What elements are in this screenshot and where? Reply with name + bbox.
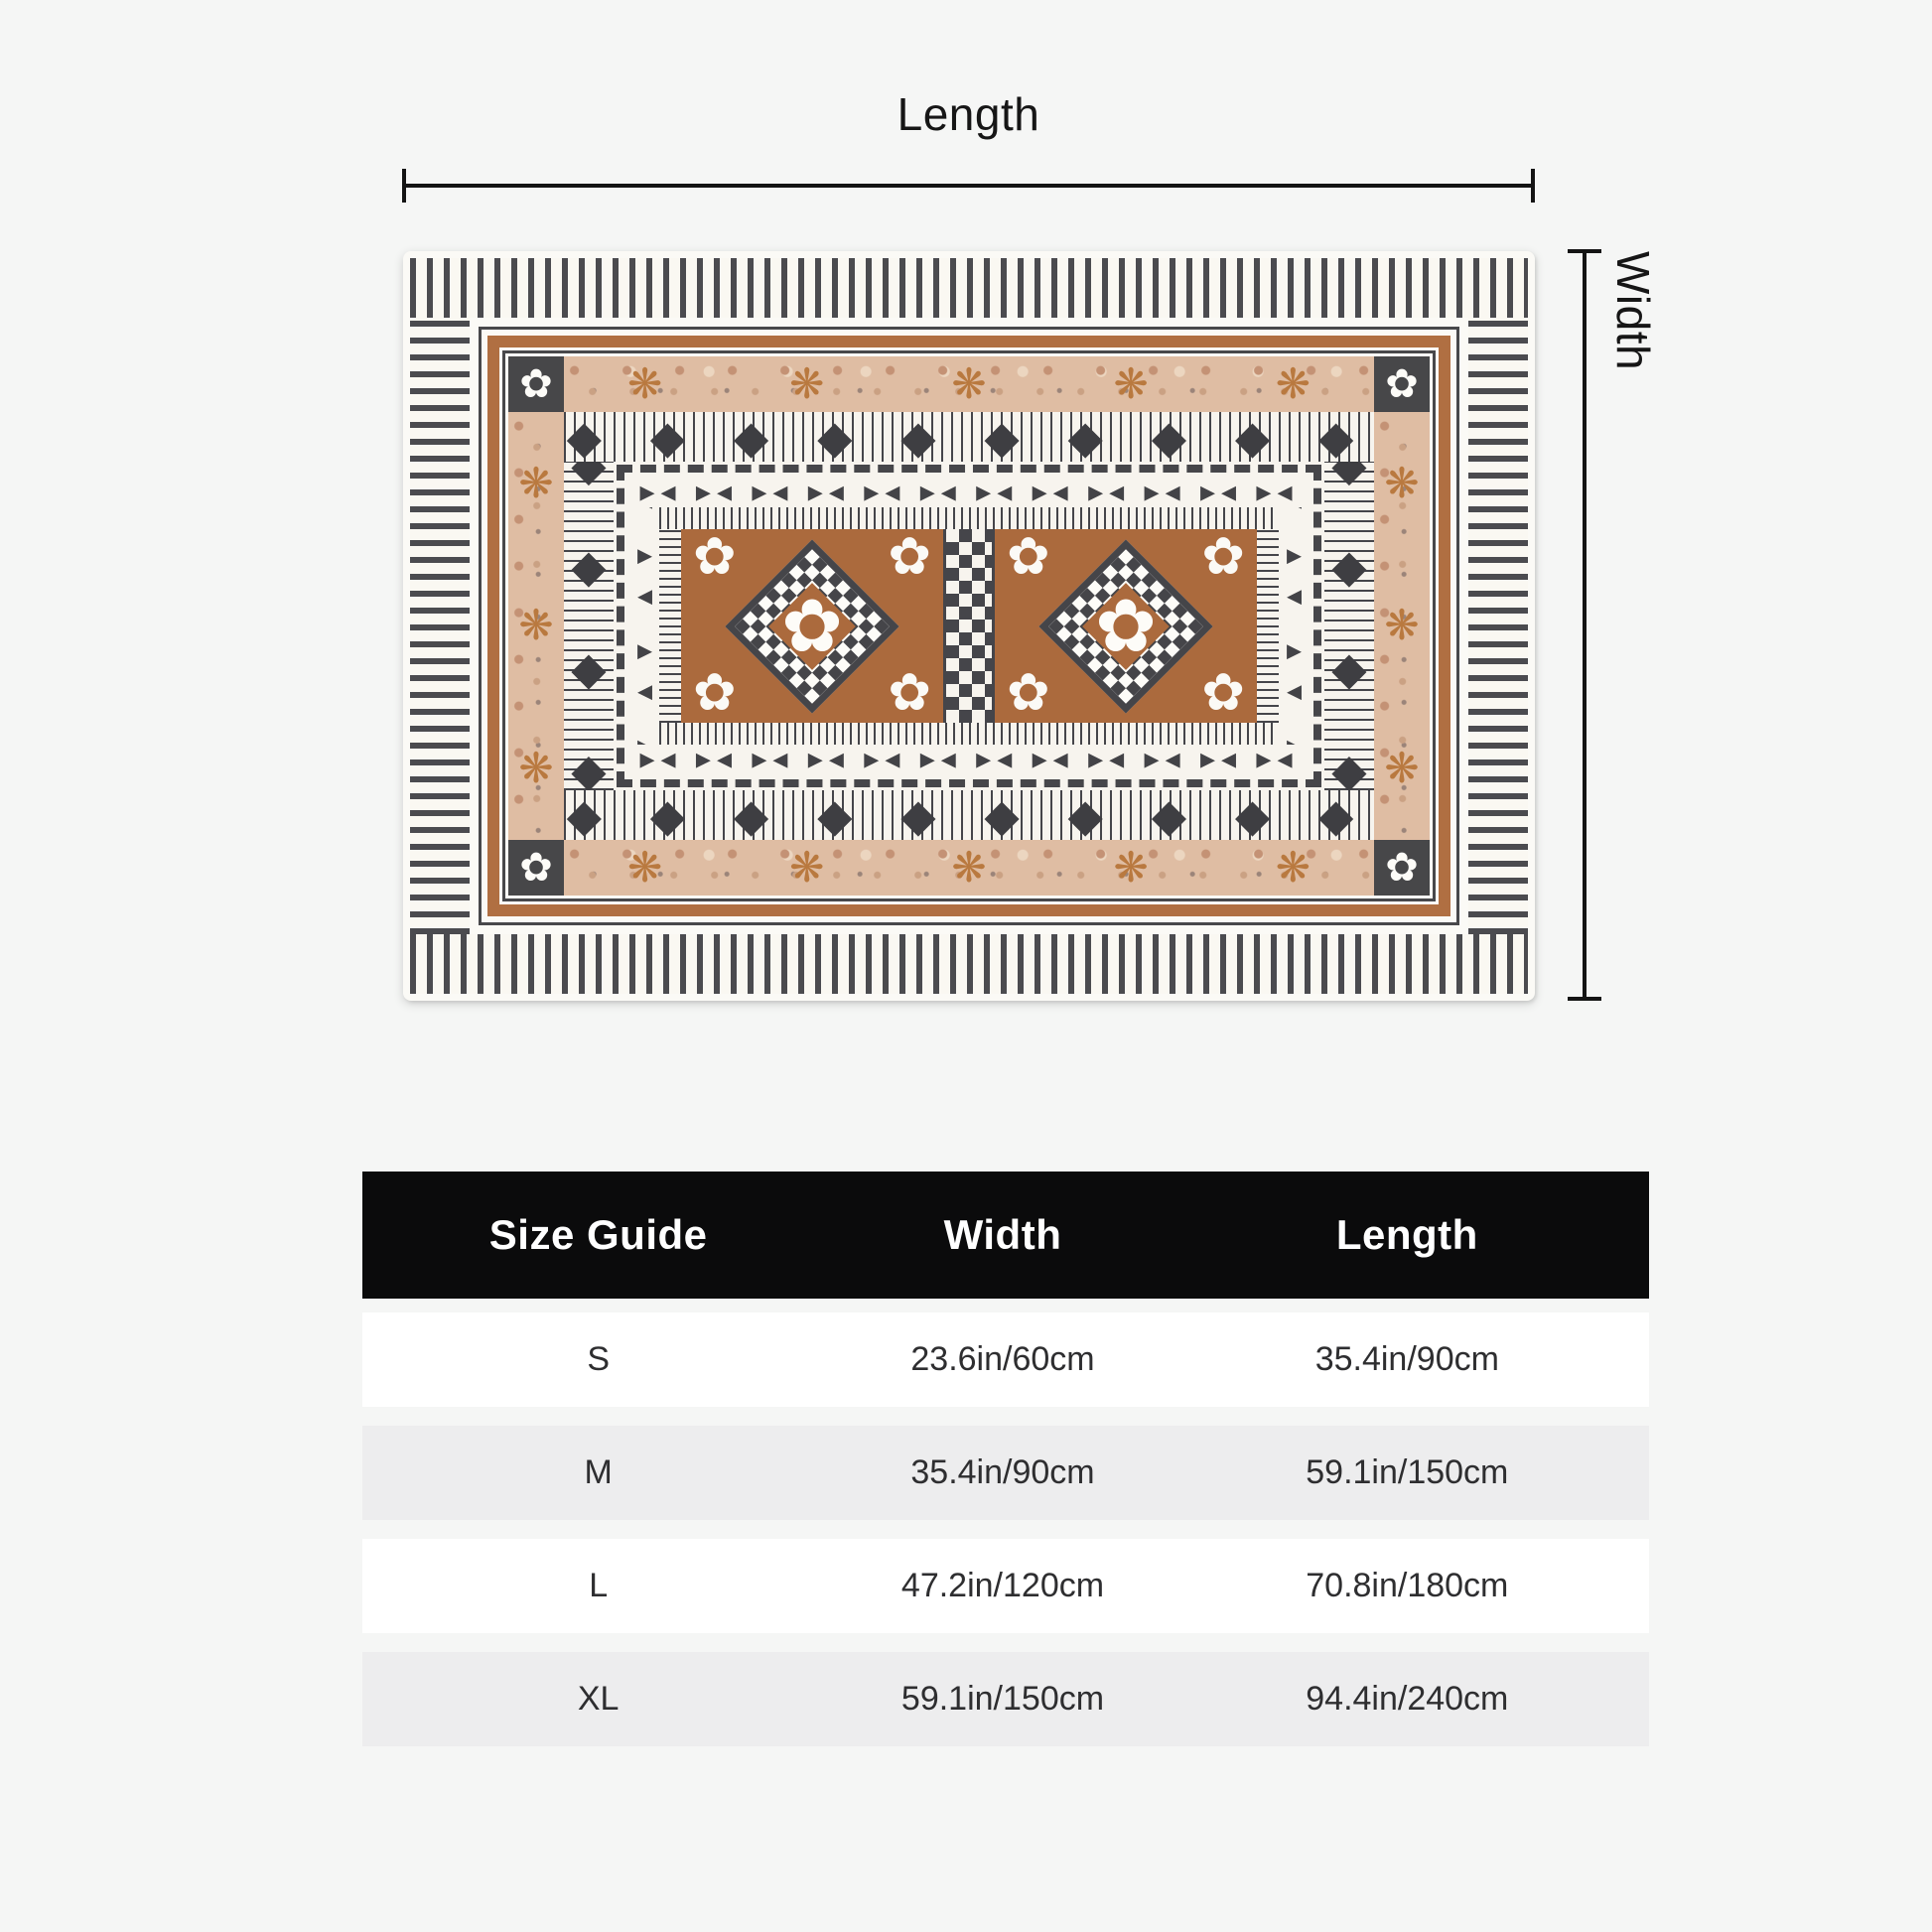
rug-mottled-band-right: ❋ ❋ ❋ [1374, 412, 1430, 840]
rug-diamond-band-left: ◆ ◆ ◆ ◆ ◆ ◆ ◆ ◆ ◆ ◆ [564, 462, 614, 790]
white-flower-icon: ✿ [781, 590, 843, 663]
rug-medallion-panel-left: ✿ ✿ ✿ ✿ ✿ [681, 529, 943, 723]
star-motif-icon: ❋ [1384, 463, 1419, 504]
table-row-m: M 35.4in/90cm 59.1in/150cm [362, 1426, 1649, 1520]
star-motif-icon: ❋ [951, 847, 986, 889]
rug-corner-flower-square: ✿ [508, 356, 564, 412]
star-motif-icon: ❋ [1114, 847, 1149, 889]
rug-stripe-border-bottom [410, 934, 1528, 994]
rug-mottled-band-top: ❋ ❋ ❋ ❋ ❋ [564, 356, 1374, 412]
white-flower-icon: ✿ [519, 364, 553, 404]
width-dimension-label: Width [1606, 251, 1660, 1001]
rug-bowtie-band-top: ▸◂ ▸◂ ▸◂ ▸◂ ▸◂ ▸◂ ▸◂ ▸◂ ▸◂ ▸◂ ▸◂ ▸◂ ▸◂ ▸… [629, 478, 1309, 507]
white-flower-icon: ✿ [1201, 667, 1245, 719]
white-flower-icon: ✿ [693, 531, 737, 583]
rug-diamond-medallion: ✿ [1038, 539, 1212, 713]
length-measure-line [402, 184, 1535, 188]
size-cell: S [396, 1340, 800, 1379]
rug-medallion-panel-right: ✿ ✿ ✿ ✿ ✿ [995, 529, 1257, 723]
star-motif-icon: ❋ [627, 847, 662, 889]
header-cell-length: Length [1205, 1211, 1609, 1259]
rug-comb-band-left [659, 529, 681, 723]
width-measure-cap-bottom [1568, 997, 1601, 1001]
white-flower-icon: ✿ [519, 848, 553, 888]
size-cell: M [396, 1453, 800, 1492]
white-flower-icon: ✿ [1385, 848, 1419, 888]
rug-corner-flower-square: ✿ [1374, 356, 1430, 412]
size-cell: XL [396, 1680, 800, 1719]
length-measure-cap-left [402, 169, 406, 203]
rug-diamond-band-top: ◆ ◆ ◆ ◆ ◆ ◆ ◆ ◆ ◆ ◆ ◆ ◆ ◆ ◆ ◆ ◆ ◆ ◆ ◆ ◆ [564, 412, 1374, 462]
star-motif-icon: ❋ [627, 363, 662, 405]
rug-bowtie-band-left: ▸◂ ▸◂ ▸◂ ▸◂ ▸◂ ▸◂ ▸◂ ▸◂ ▸◂ ▸◂ [629, 507, 659, 745]
star-motif-icon: ❋ [1384, 605, 1419, 646]
white-flower-icon: ✿ [1095, 590, 1157, 663]
star-motif-icon: ❋ [951, 363, 986, 405]
header-cell-size-guide: Size Guide [396, 1211, 800, 1259]
rug-bowtie-band-right: ▸◂ ▸◂ ▸◂ ▸◂ ▸◂ ▸◂ ▸◂ ▸◂ ▸◂ ▸◂ [1279, 507, 1309, 745]
star-motif-icon: ❋ [518, 748, 553, 789]
rug-bowtie-band-bottom: ▸◂ ▸◂ ▸◂ ▸◂ ▸◂ ▸◂ ▸◂ ▸◂ ▸◂ ▸◂ ▸◂ ▸◂ ▸◂ ▸… [629, 745, 1309, 774]
size-table-header: Size Guide Width Length [362, 1172, 1649, 1299]
rug-stripe-border-top [410, 258, 1528, 318]
rug-diamond-band-right: ◆ ◆ ◆ ◆ ◆ ◆ ◆ ◆ ◆ ◆ [1324, 462, 1374, 790]
rug-center-triangle-strip [943, 529, 995, 723]
table-row-l: L 47.2in/120cm 70.8in/180cm [362, 1539, 1649, 1633]
rug-corner-flower-square: ✿ [1374, 840, 1430, 896]
medallion-core: ✿ [1082, 583, 1170, 670]
star-motif-icon: ❋ [789, 363, 824, 405]
table-row-s: S 23.6in/60cm 35.4in/90cm [362, 1312, 1649, 1407]
star-motif-icon: ❋ [1276, 363, 1311, 405]
size-cell: L [396, 1567, 800, 1605]
white-flower-icon: ✿ [1007, 531, 1050, 583]
rug-comb-band-top [659, 507, 1279, 529]
rug-diamond-band-bottom: ◆ ◆ ◆ ◆ ◆ ◆ ◆ ◆ ◆ ◆ ◆ ◆ ◆ ◆ ◆ ◆ ◆ ◆ ◆ ◆ [564, 790, 1374, 840]
star-motif-icon: ❋ [789, 847, 824, 889]
rug-stripe-border-right [1468, 318, 1528, 934]
width-cell: 35.4in/90cm [800, 1453, 1204, 1492]
rug-comb-band-right [1257, 529, 1279, 723]
white-flower-icon: ✿ [888, 667, 931, 719]
rug-product-image: ❋ ❋ ❋ ❋ ❋ ❋ ❋ ❋ ❋ ❋ ❋ ❋ ❋ ❋ ❋ ❋ ✿ ✿ ✿ ✿ … [403, 251, 1535, 1001]
white-flower-icon: ✿ [1385, 364, 1419, 404]
medallion-core: ✿ [768, 583, 856, 670]
star-motif-icon: ❋ [518, 605, 553, 646]
rug-mottled-band-left: ❋ ❋ ❋ [508, 412, 564, 840]
rug-diamond-medallion: ✿ [725, 539, 898, 713]
star-motif-icon: ❋ [1276, 847, 1311, 889]
length-cell: 35.4in/90cm [1205, 1340, 1609, 1379]
length-cell: 59.1in/150cm [1205, 1453, 1609, 1492]
white-flower-icon: ✿ [693, 667, 737, 719]
width-measure-cap-top [1568, 249, 1601, 253]
size-guide-page: { "page": { "background": "#f5f6f5" }, "… [0, 0, 1932, 1932]
white-flower-icon: ✿ [888, 531, 931, 583]
rug-mottled-band-bottom: ❋ ❋ ❋ ❋ ❋ [564, 840, 1374, 896]
length-dimension-label: Length [402, 87, 1535, 141]
rug-corner-flower-square: ✿ [508, 840, 564, 896]
width-cell: 59.1in/150cm [800, 1680, 1204, 1719]
length-cell: 94.4in/240cm [1205, 1680, 1609, 1719]
star-motif-icon: ❋ [518, 463, 553, 504]
rug-inner-field: ✿ ✿ ✿ ✿ ✿ ✿ ✿ ✿ ✿ ✿ [681, 529, 1257, 723]
length-cell: 70.8in/180cm [1205, 1567, 1609, 1605]
white-flower-icon: ✿ [1201, 531, 1245, 583]
header-cell-width: Width [800, 1211, 1204, 1259]
star-motif-icon: ❋ [1114, 363, 1149, 405]
table-row-xl: XL 59.1in/150cm 94.4in/240cm [362, 1652, 1649, 1746]
width-measure-line [1583, 249, 1587, 1001]
length-measure-cap-right [1531, 169, 1535, 203]
star-motif-icon: ❋ [1384, 748, 1419, 789]
rug-stripe-border-left [410, 318, 470, 934]
white-flower-icon: ✿ [1007, 667, 1050, 719]
width-cell: 23.6in/60cm [800, 1340, 1204, 1379]
width-cell: 47.2in/120cm [800, 1567, 1204, 1605]
rug-comb-band-bottom [659, 723, 1279, 745]
